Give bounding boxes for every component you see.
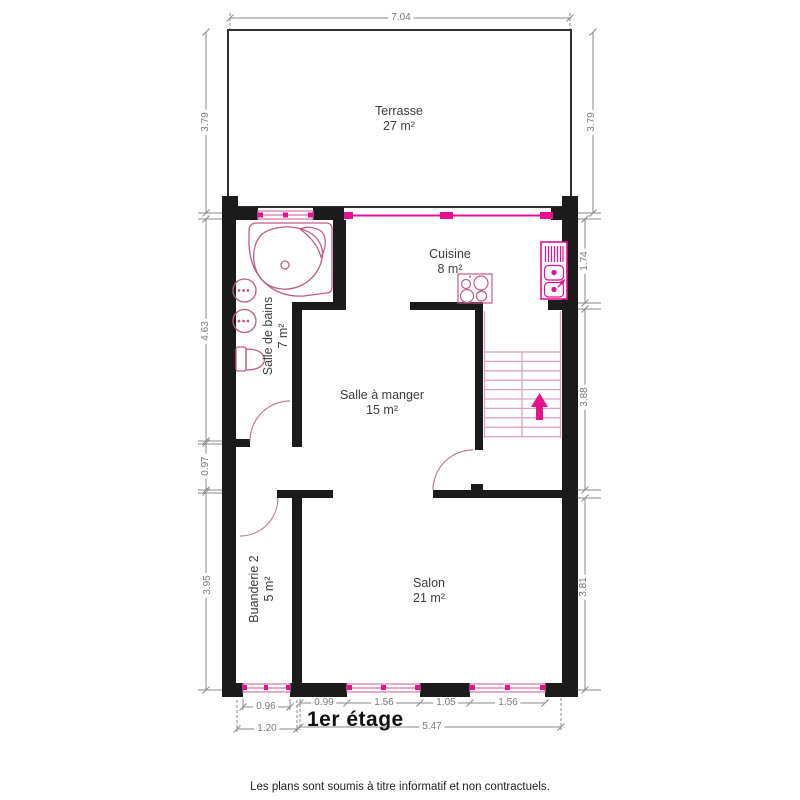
room-label-terrasse: Terrasse 27 m² <box>375 104 423 134</box>
bay-window <box>344 212 553 219</box>
windows <box>243 211 553 692</box>
room-name: Salle à manger <box>340 388 424 403</box>
room-label-cuisine: Cuisine 8 m² <box>429 247 471 277</box>
room-area: 15 m² <box>340 403 424 418</box>
kitchen-sink <box>541 242 567 299</box>
staircase <box>484 311 561 438</box>
room-name: Terrasse <box>375 104 423 119</box>
room-area: 7 m² <box>276 297 291 376</box>
dim-buanderie-width: 1.20 <box>254 723 279 735</box>
dim-hall-left: 0.97 <box>200 453 212 478</box>
room-label-buanderie: Buanderie 2 5 m² <box>247 555 277 622</box>
room-label-salle-de-bains: Salle de bains 7 m² <box>261 297 291 376</box>
room-label-salle-a-manger: Salle à manger 15 m² <box>340 388 424 418</box>
bathtub <box>249 223 332 296</box>
door-arcs <box>240 401 473 536</box>
floor-plan-page: Terrasse 27 m² Cuisine 8 m² Salle de bai… <box>0 0 800 800</box>
dim-salon-right: 3.81 <box>578 574 590 599</box>
dim-buanderie-left: 3.95 <box>202 572 214 597</box>
dim-bains-left: 4.63 <box>200 318 212 343</box>
dim-terrace-width: 7.04 <box>388 12 413 24</box>
disclaimer-text: Les plans sont soumis à titre informatif… <box>0 781 800 793</box>
room-area: 5 m² <box>262 555 277 622</box>
room-name: Cuisine <box>429 247 471 262</box>
dim-terrace-right: 3.79 <box>586 109 598 134</box>
bathroom-sinks <box>233 279 256 333</box>
dim-cuisine-right: 1.74 <box>579 248 591 273</box>
floor-title: 1er étage <box>307 708 404 732</box>
stove <box>458 274 492 303</box>
dim-stair-right: 3.88 <box>579 384 591 409</box>
room-label-salon: Salon 21 m² <box>413 576 445 606</box>
room-name: Salle de bains <box>261 297 276 376</box>
dim-salon-seg3: 1.05 <box>433 697 458 709</box>
stair-up-arrow-icon <box>531 393 548 420</box>
dim-buanderie-window: 0.96 <box>253 701 278 713</box>
dim-salon-width: 5.47 <box>419 721 444 733</box>
room-area: 21 m² <box>413 591 445 606</box>
room-name: Salon <box>413 576 445 591</box>
dim-salon-seg4: 1.56 <box>495 697 520 709</box>
room-area: 8 m² <box>429 262 471 277</box>
dim-terrace-left: 3.79 <box>200 109 212 134</box>
room-name: Buanderie 2 <box>247 555 262 622</box>
room-area: 27 m² <box>375 119 423 134</box>
